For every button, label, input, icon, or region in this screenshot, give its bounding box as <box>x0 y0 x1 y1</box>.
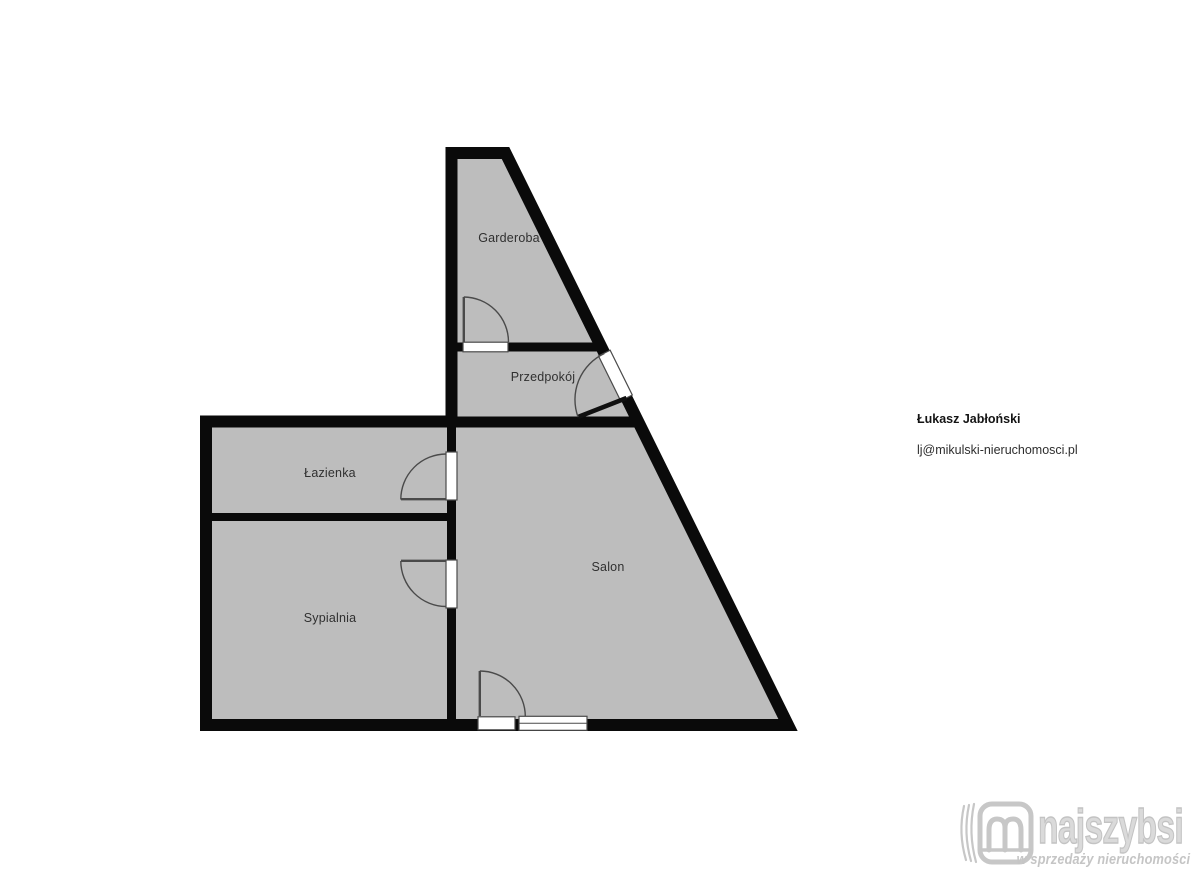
room-label-przedpokoj: Przedpokój <box>511 370 576 384</box>
room-label-salon: Salon <box>592 560 625 574</box>
floorplan-page: Garderoba Przedpokój Łazienka Sypialnia … <box>0 0 1200 878</box>
room-label-garderoba: Garderoba <box>478 231 540 245</box>
brand-logo-text: najszybsi w sprzedaży nieruchomości <box>1038 801 1190 868</box>
agent-contact: Łukasz Jabłoński lj@mikulski-nieruchomos… <box>917 412 1078 457</box>
room-label-sypialnia: Sypialnia <box>304 611 357 625</box>
brand-logo: najszybsi w sprzedaży nieruchomości <box>956 801 1190 868</box>
brand-name: najszybsi <box>1038 809 1144 847</box>
brand-tagline: w sprzedaży nieruchomości <box>1016 851 1190 868</box>
window-salon <box>519 716 587 730</box>
room-label-lazienka: Łazienka <box>304 466 356 480</box>
agent-email: lj@mikulski-nieruchomosci.pl <box>917 443 1078 457</box>
agent-name: Łukasz Jabłoński <box>917 412 1078 426</box>
